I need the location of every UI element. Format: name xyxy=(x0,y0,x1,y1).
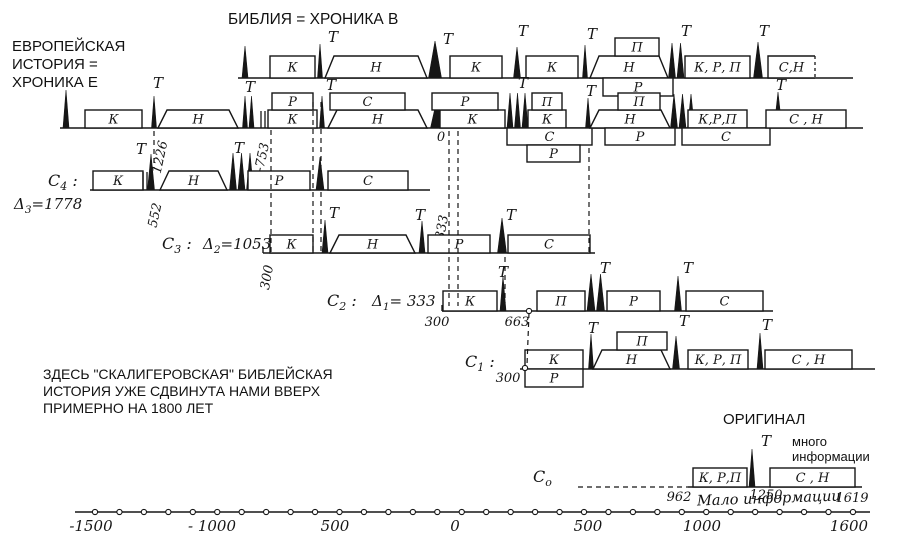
event-spike-icon xyxy=(230,153,237,190)
era-letter: Н xyxy=(191,113,204,128)
era-letter: К xyxy=(112,174,124,189)
era-letter: С xyxy=(544,238,554,253)
t-marker: Т xyxy=(498,263,509,281)
tspan: С xyxy=(327,291,339,310)
tspan: Δ xyxy=(13,195,25,213)
axis-circle xyxy=(459,509,464,514)
t-marker: Т xyxy=(415,206,426,224)
era-letter: К xyxy=(286,113,298,128)
axis-circle xyxy=(386,509,391,514)
event-spike-icon xyxy=(63,90,69,128)
era-letter: П xyxy=(632,95,645,110)
tspan: =1778 xyxy=(32,195,83,213)
era-letter: К xyxy=(286,61,298,76)
shift-note-line3: ПРИМЕРНО НА 1800 ЛЕТ xyxy=(43,400,333,417)
tspan: 1 xyxy=(477,361,484,374)
era-letter: К xyxy=(546,61,558,76)
axis-circle xyxy=(801,509,806,514)
event-spike-icon xyxy=(152,96,157,128)
era-letter: К xyxy=(470,61,482,76)
axis-tick-label: 0 xyxy=(450,517,460,535)
row-label: С3 : xyxy=(162,234,192,256)
t-marker: Т xyxy=(600,259,611,277)
axis-circle xyxy=(704,509,709,514)
event-spike-icon xyxy=(677,43,684,78)
shift-note-line1: ЗДЕСЬ "СКАЛИГЕРОВСКАЯ" БИБЛЕЙСКАЯ xyxy=(43,366,333,383)
t-marker: Т xyxy=(587,25,598,43)
tspan: Δ xyxy=(371,292,383,310)
axis-circle xyxy=(581,509,586,514)
era-letter: С , Н xyxy=(792,353,826,368)
axis-tick-label: 500 xyxy=(321,517,350,535)
year-label: 300 xyxy=(258,264,277,291)
tspan: : xyxy=(346,291,356,310)
row-label: С1 : xyxy=(465,352,495,374)
row-label: С4 : xyxy=(48,171,78,193)
era-letter: П xyxy=(630,41,643,56)
era-letter: К, Р,П xyxy=(698,471,742,486)
event-spike-icon xyxy=(671,94,678,128)
axis-circle xyxy=(850,509,855,514)
event-spike-icon xyxy=(322,220,328,253)
era-letter: К xyxy=(285,238,297,253)
axis-circle xyxy=(215,509,220,514)
era-letter: Р xyxy=(628,295,638,310)
axis-circle xyxy=(312,509,317,514)
tspan: Δ xyxy=(202,235,214,253)
axis-circle xyxy=(288,509,293,514)
axis-circle xyxy=(92,509,97,514)
axis-circle xyxy=(264,509,269,514)
chronicle-row-C3: С3 :Δ2=1053300КТНТ333РТС xyxy=(162,204,595,291)
era-letter: С , Н xyxy=(796,471,830,486)
year-label: 663 xyxy=(505,315,530,330)
era-letter: Р xyxy=(460,95,470,110)
era-letter: Н xyxy=(622,61,635,76)
era-letter: К xyxy=(466,113,478,128)
axis-tick-label: 1600 xyxy=(830,517,869,535)
year-label: 552 xyxy=(146,202,166,229)
era-letter: Р xyxy=(454,238,464,253)
axis-circle xyxy=(606,509,611,514)
connector-node xyxy=(526,308,531,313)
event-spike-icon xyxy=(238,153,245,190)
era-letter: П xyxy=(554,295,567,310)
era-letter: П xyxy=(635,335,648,350)
era-letter: Н xyxy=(625,353,638,368)
event-spike-icon xyxy=(242,46,248,78)
year-label: 962 xyxy=(667,490,692,505)
t-marker: Т xyxy=(586,82,597,100)
t-marker: Т xyxy=(679,312,690,330)
t-marker: Т xyxy=(153,74,164,92)
t-marker: Т xyxy=(762,316,773,334)
t-marker: Т xyxy=(518,22,529,40)
tspan: 3 xyxy=(174,243,181,256)
axis-circle xyxy=(410,509,415,514)
event-spike-icon xyxy=(243,96,248,128)
tspan: С xyxy=(162,234,174,253)
era-letter: К xyxy=(548,353,560,368)
chronicle-e-title-line2: ИСТОРИЯ = xyxy=(12,56,125,74)
era-letter: С xyxy=(363,174,373,189)
tspan: : xyxy=(67,171,77,190)
era-letter: С xyxy=(545,130,555,145)
axis-circle xyxy=(239,509,244,514)
t-marker: Т xyxy=(328,28,339,46)
era-letter: Р xyxy=(548,147,558,162)
year-label: 300 xyxy=(496,371,521,386)
t-marker: Т xyxy=(443,30,454,48)
year-label: -753 xyxy=(252,141,273,173)
tspan: 2 xyxy=(338,300,346,313)
era-letter: Р xyxy=(274,174,284,189)
axis-circle xyxy=(141,509,146,514)
axis-tick-label: -1500 xyxy=(69,517,113,535)
event-spike-icon xyxy=(522,93,528,128)
tspan: : xyxy=(484,352,494,371)
original-label: ОРИГИНАЛ xyxy=(723,411,805,429)
era-letter: С,Н xyxy=(779,61,805,76)
t-marker: Т xyxy=(245,78,256,96)
row-shift-value: Δ1= 333 xyxy=(371,292,436,313)
tspan: 1 xyxy=(383,301,390,313)
event-spike-icon xyxy=(507,93,513,128)
year-label: 1226 xyxy=(150,140,172,175)
much-info-line2: информации xyxy=(792,449,870,464)
event-spike-icon xyxy=(583,45,588,78)
axis-circle xyxy=(435,509,440,514)
shift-note: ЗДЕСЬ "СКАЛИГЕРОВСКАЯ" БИБЛЕЙСКАЯ ИСТОРИ… xyxy=(43,366,333,417)
event-spike-icon xyxy=(318,44,323,78)
t-marker: Т xyxy=(326,76,337,94)
axis-circle xyxy=(728,509,733,514)
era-letter: Н xyxy=(369,61,382,76)
era-letter: Н xyxy=(187,174,200,189)
era-letter: С xyxy=(363,95,373,110)
t-marker: Т xyxy=(588,319,599,337)
axis-circle xyxy=(361,509,366,514)
tspan: : xyxy=(181,234,191,253)
row-shift-value: Δ3=1778 xyxy=(13,195,82,216)
era-letter: Р xyxy=(549,372,559,387)
era-letter: К, Р, П xyxy=(694,353,742,368)
event-spike-icon xyxy=(675,276,682,311)
axis-circle xyxy=(826,509,831,514)
axis-tick-label: 1000 xyxy=(683,517,722,535)
event-spike-icon xyxy=(673,336,680,369)
era-letter: С , Н xyxy=(789,113,823,128)
much-info-label: много информации xyxy=(792,434,870,464)
t-marker: Т xyxy=(329,204,340,222)
axis-circle xyxy=(557,509,562,514)
row-label: С2 : xyxy=(327,291,357,313)
era-letter: П xyxy=(541,95,553,109)
axis-circle xyxy=(630,509,635,514)
figure-canvas: КТНТКТКТНПРТК, Р, ПТС,НКТНТКРТНСКРТКПСРТ… xyxy=(0,0,900,548)
era-letter: Н xyxy=(371,113,384,128)
axis-circle xyxy=(655,509,660,514)
era-letter: Р xyxy=(635,130,645,145)
event-spike-icon xyxy=(419,221,425,253)
event-spike-icon xyxy=(754,42,763,78)
t-marker: Т xyxy=(776,76,787,94)
era-letter: С xyxy=(721,130,731,145)
era-letter: Р xyxy=(287,95,297,110)
event-spike-icon xyxy=(597,274,605,311)
chronicle-row-C4: С4 :Δ3=1778КТ1226552НТРС xyxy=(13,139,430,229)
t-marker: Т xyxy=(506,206,517,224)
chronicle-row-C2: С2 :Δ1= 333300КТ663ПТРТС xyxy=(327,259,773,330)
event-spike-icon xyxy=(320,96,325,128)
row-shift-value: Δ2=1053 xyxy=(202,235,271,256)
axis-circle xyxy=(508,509,513,514)
tspan: С xyxy=(48,171,60,190)
axis-circle xyxy=(679,509,684,514)
t-marker: Т xyxy=(136,140,147,158)
axis-circle xyxy=(337,509,342,514)
axis-circle xyxy=(484,509,489,514)
tspan: С xyxy=(533,467,545,486)
t-marker: Т xyxy=(683,259,694,277)
event-spike-icon xyxy=(757,333,763,369)
t-marker: Т xyxy=(518,74,529,92)
t-marker: Т xyxy=(761,432,772,450)
era-letter: Н xyxy=(623,113,636,128)
tspan: 4 xyxy=(59,180,67,193)
era-letter: С xyxy=(720,295,730,310)
event-spike-icon xyxy=(586,98,591,128)
shift-note-line2: ИСТОРИЯ УЖЕ СДВИНУТА НАМИ ВВЕРХ xyxy=(43,383,333,400)
year-label: 300 xyxy=(425,315,450,330)
chronology-diagram: КТНТКТКТНПРТК, Р, ПТС,НКТНТКРТНСКРТКПСРТ… xyxy=(0,0,900,548)
axis-tick-label: - 1000 xyxy=(188,517,236,535)
tspan: С xyxy=(465,352,477,371)
axis-circle xyxy=(777,509,782,514)
year-label: 0 xyxy=(437,130,445,145)
event-spike-icon xyxy=(589,334,594,369)
axis-circle xyxy=(533,509,538,514)
era-letter: К xyxy=(464,295,476,310)
diagram-root: КТНТКТКТНПРТК, Р, ПТС,НКТНТКРТНСКРТКПСРТ… xyxy=(13,22,875,535)
chronicle-e-title-line3: ХРОНИКА Е xyxy=(12,74,125,92)
much-info-line1: много xyxy=(792,434,870,449)
event-spike-icon xyxy=(316,157,324,190)
event-spike-icon xyxy=(669,43,676,78)
chronicle-row-E: КТНТКРТНСКРТКПСРТНПРК,Р,ПСТС , Н xyxy=(60,74,863,162)
chronicle-e-title: ЕВРОПЕЙСКАЯ ИСТОРИЯ = ХРОНИКА Е xyxy=(12,38,125,92)
event-spike-icon xyxy=(429,41,442,78)
axis-circle xyxy=(753,509,758,514)
era-letter: К,Р,П xyxy=(697,113,737,128)
t-marker: Т xyxy=(681,22,692,40)
event-spike-icon xyxy=(515,93,521,128)
axis-tick-label: 500 xyxy=(574,517,603,535)
event-spike-icon xyxy=(249,96,254,128)
chronicle-e-title-line1: ЕВРОПЕЙСКАЯ xyxy=(12,38,125,56)
era-letter: К, Р, П xyxy=(693,61,741,76)
connector-node xyxy=(522,365,527,370)
axis-circle xyxy=(190,509,195,514)
chronicle-b-title: БИБЛИЯ = ХРОНИКА В xyxy=(228,11,398,29)
era-letter: К xyxy=(107,113,119,128)
era-letter: К xyxy=(541,113,553,128)
event-spike-icon xyxy=(679,94,686,128)
event-spike-icon xyxy=(749,449,755,487)
tspan: = 333 xyxy=(390,292,436,310)
axis-circle xyxy=(166,509,171,514)
event-spike-icon xyxy=(587,274,595,311)
tspan: о xyxy=(545,476,552,489)
year-axis: -1500- 1000500050010001600 xyxy=(69,509,870,535)
t-marker: Т xyxy=(234,139,245,157)
era-letter: Н xyxy=(366,238,379,253)
row-label: Со xyxy=(533,467,552,489)
axis-circle xyxy=(117,509,122,514)
t-marker: Т xyxy=(759,22,770,40)
